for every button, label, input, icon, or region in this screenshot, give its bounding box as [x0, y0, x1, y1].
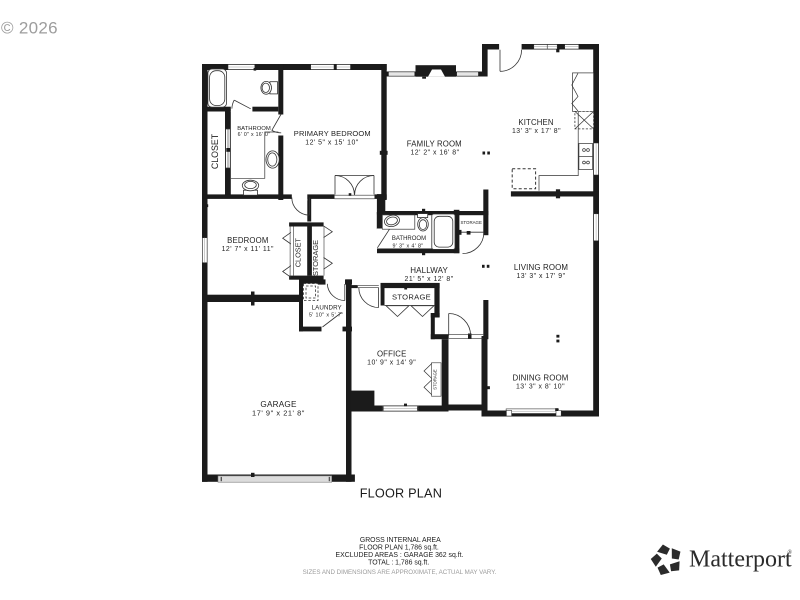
svg-text:GROSS INTERNAL AREA: GROSS INTERNAL AREA: [360, 537, 441, 544]
svg-text:STORAGE: STORAGE: [392, 292, 431, 301]
svg-text:®: ®: [788, 549, 793, 556]
svg-text:STORAGE: STORAGE: [311, 240, 320, 276]
svg-text:BEDROOM: BEDROOM: [227, 236, 268, 245]
svg-text:GARAGE: GARAGE: [260, 400, 297, 409]
svg-text:13' 3" x 8' 10": 13' 3" x 8' 10": [516, 384, 565, 391]
svg-text:6' 0" x 16' 0": 6' 0" x 16' 0": [238, 132, 271, 138]
svg-text:Matterport: Matterport: [689, 547, 792, 573]
svg-text:FLOOR PLAN 1,786 sq.ft.: FLOOR PLAN 1,786 sq.ft.: [359, 545, 439, 552]
svg-text:BATHROOM: BATHROOM: [237, 126, 271, 132]
svg-text:KITCHEN: KITCHEN: [518, 118, 553, 127]
svg-text:CLOSET: CLOSET: [294, 237, 303, 267]
svg-text:SIZES AND DIMENSIONS ARE APPRO: SIZES AND DIMENSIONS ARE APPROXIMATE, AC…: [303, 569, 497, 576]
svg-text:STORAGE: STORAGE: [461, 220, 482, 225]
svg-text:LAUNDRY: LAUNDRY: [312, 304, 342, 311]
svg-text:5' 10" x 5' 7": 5' 10" x 5' 7": [309, 313, 343, 319]
svg-text:12' 2" x 16' 8": 12' 2" x 16' 8": [410, 150, 459, 157]
svg-text:BATHROOM: BATHROOM: [392, 236, 426, 242]
svg-text:21' 5" x 12' 8": 21' 5" x 12' 8": [405, 276, 454, 283]
svg-text:17' 9" x 21' 8": 17' 9" x 21' 8": [252, 409, 305, 418]
svg-text:10' 9" x 14' 9": 10' 9" x 14' 9": [367, 360, 416, 367]
svg-text:HALLWAY: HALLWAY: [410, 266, 448, 275]
svg-text:LIVING ROOM: LIVING ROOM: [514, 263, 568, 272]
svg-text:13' 3" x 17' 9": 13' 3" x 17' 9": [516, 273, 565, 280]
svg-text:12' 5" x 15' 10": 12' 5" x 15' 10": [305, 139, 359, 146]
svg-text:PRIMARY BEDROOM: PRIMARY BEDROOM: [294, 129, 371, 138]
svg-text:FLOOR PLAN: FLOOR PLAN: [360, 486, 442, 500]
svg-text:12' 7" x 11' 11": 12' 7" x 11' 11": [222, 246, 274, 253]
svg-text:EXCLUDED AREAS : GARAGE 362 s: EXCLUDED AREAS : GARAGE 362 sq.ft.: [336, 552, 464, 559]
svg-text:FAMILY ROOM: FAMILY ROOM: [407, 139, 462, 148]
svg-text:© 2026: © 2026: [1, 19, 58, 38]
svg-text:STORAGE: STORAGE: [433, 369, 438, 390]
svg-text:DINING ROOM: DINING ROOM: [512, 373, 568, 382]
svg-text:OFFICE: OFFICE: [377, 349, 407, 358]
svg-text:CLOSET: CLOSET: [210, 133, 220, 169]
svg-text:9' 3" x 4' 8": 9' 3" x 4' 8": [392, 243, 423, 249]
svg-text:13' 3" x 17' 8": 13' 3" x 17' 8": [512, 128, 561, 135]
svg-text:TOTAL : 1,786 sq.ft.: TOTAL : 1,786 sq.ft.: [368, 560, 429, 567]
